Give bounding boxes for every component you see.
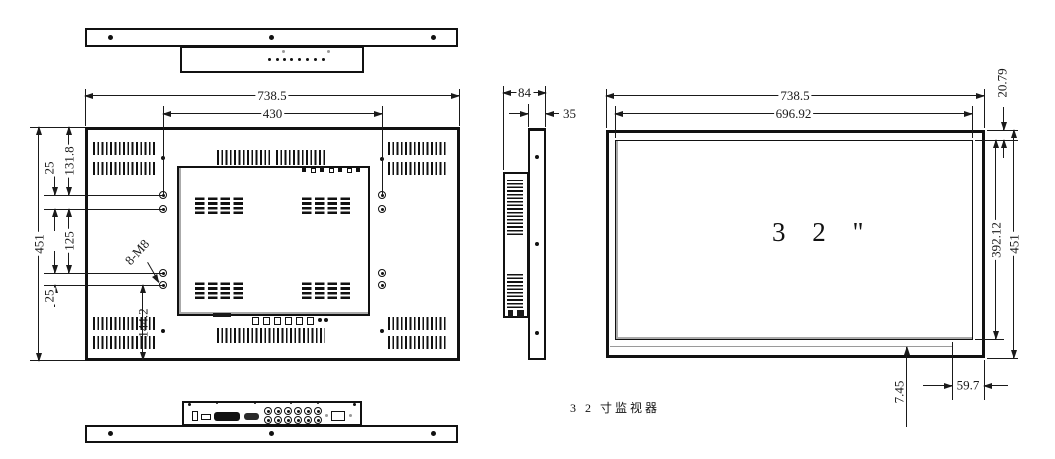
button-dot [327, 50, 330, 53]
extension-line [44, 273, 162, 274]
connector-cutout [318, 318, 322, 322]
vent-grille [388, 317, 448, 330]
bnc-connector [264, 407, 272, 415]
bnc-connector [274, 407, 282, 415]
drawing-caption: 3 2 寸监视器 [570, 399, 660, 416]
extension-line [44, 209, 162, 210]
chassis-bottom-tab [213, 313, 231, 317]
screw-dot [269, 35, 274, 40]
technical-drawing: 738.5 430 451 131.8 25 125 25 144.2 8-M8 [0, 0, 1055, 459]
side-vent-grille [507, 180, 523, 235]
vent-grille [217, 150, 270, 165]
bnc-connector [304, 407, 312, 415]
vent-grille [388, 142, 448, 155]
connector-cutout [263, 317, 270, 325]
screw-dot [535, 155, 539, 159]
dim-back-height: 451 [38, 127, 39, 361]
vent-grille [388, 162, 448, 175]
slot-vent-group [302, 196, 350, 214]
vent-grille [93, 142, 155, 155]
vent-grille [93, 162, 155, 175]
vga-port [244, 413, 259, 420]
dim-corner-offset-seg [923, 385, 952, 386]
screen-size-label: 3 2 " [772, 217, 874, 248]
chassis-top-cutout [329, 168, 334, 173]
usb-port [201, 414, 211, 420]
dim-hole-gap-top-seg [54, 209, 55, 231]
connector-cutout [324, 318, 328, 322]
chassis-top-cutout [320, 168, 324, 172]
connector-cutout [252, 317, 259, 325]
dim-hole-gap-bottom-seg [54, 251, 55, 273]
bnc-connector [314, 407, 322, 415]
osd-button-dot [322, 58, 325, 61]
dim-label: 451 [1008, 232, 1021, 256]
vent-grille [276, 150, 326, 165]
extension-line [503, 86, 504, 170]
dim-screen-width: 696.92 [615, 113, 972, 114]
extension-line [952, 342, 953, 400]
side-foot [517, 310, 524, 317]
dim-front-height: 451 [1013, 130, 1014, 358]
bezel-lip-line [610, 346, 952, 347]
connector-cutout [307, 317, 314, 325]
power-switch [192, 411, 198, 421]
dim-front-depth-seg [509, 113, 528, 114]
bnc-connector [304, 416, 312, 424]
dvi-port [214, 412, 240, 421]
button-dot [282, 50, 285, 53]
dim-back-width: 738.5 [85, 95, 459, 96]
side-foot [508, 310, 513, 317]
dim-label: 84 [516, 86, 533, 99]
extension-line [984, 360, 985, 400]
osd-button-dot [283, 58, 286, 61]
side-vent-grille [507, 272, 523, 308]
screw-dot [353, 403, 356, 406]
vent-dot [216, 402, 218, 404]
extension-line [163, 106, 164, 194]
screw-dot [108, 431, 113, 436]
dim-corner-offset-seg [984, 385, 1008, 386]
dim-label: 738.5 [255, 89, 288, 102]
extension-line [44, 195, 162, 196]
dim-front-width: 738.5 [606, 95, 984, 96]
screw-dot [380, 329, 384, 333]
extension-line [382, 106, 383, 194]
chassis-top-cutout [356, 168, 360, 172]
vent-dot [254, 402, 256, 404]
slot-vent-group [195, 196, 243, 214]
screw-dot [431, 431, 436, 436]
dim-label: 392.12 [990, 220, 1003, 260]
dim-hole-bottom-offset: 144.2 [142, 285, 143, 360]
chassis-top-cutout [311, 168, 316, 173]
dim-mount-width: 430 [163, 113, 382, 114]
vesa-hole [378, 281, 386, 289]
chassis-top-cutout [347, 168, 352, 173]
dim-total-depth: 84 [503, 92, 546, 93]
connector-cutout [274, 317, 281, 325]
connector-cutout [285, 317, 292, 325]
osd-button-dot [298, 58, 301, 61]
screw-dot [108, 35, 113, 40]
dim-label-top-margin: 20.79 [996, 66, 1009, 99]
screw-mark [325, 414, 328, 417]
vent-grille [217, 328, 325, 343]
extension-line [975, 339, 1004, 340]
screw-dot [188, 403, 191, 406]
vent-dot [317, 402, 319, 404]
bnc-connector [284, 416, 292, 424]
dim-label: 738.5 [778, 89, 811, 102]
osd-button-dot [290, 58, 293, 61]
dim-label-bottom-margin: 7.45 [893, 379, 906, 406]
slot-vent-group [302, 281, 350, 299]
bnc-connector [314, 416, 322, 424]
vent-grille [388, 336, 448, 349]
chassis-top-cutout [338, 168, 342, 172]
bnc-connector [294, 407, 302, 415]
dim-hole-top-offset: 131.8 [68, 127, 69, 195]
dim-label-front-depth: 35 [561, 107, 578, 120]
dim-label: 451 [33, 232, 46, 256]
dim-label: 125 [63, 229, 76, 253]
osd-button-dot [276, 58, 279, 61]
top-view-chassis [180, 46, 364, 73]
dim-hole-mid-span: 125 [68, 209, 69, 273]
dim-label-corner-offset: 59.7 [955, 379, 982, 392]
osd-button-dot [306, 58, 309, 61]
dim-front-depth-seg [546, 113, 559, 114]
bnc-connector [264, 416, 272, 424]
dim-label: 144.2 [137, 306, 150, 339]
screw-dot [269, 431, 274, 436]
screw-mark [349, 414, 352, 417]
slot-vent-group [195, 281, 243, 299]
bnc-connector [284, 407, 292, 415]
bnc-connector [274, 416, 282, 424]
screw-dot [431, 35, 436, 40]
dim-label: 430 [261, 107, 285, 120]
screw-dot [161, 329, 165, 333]
dim-label-hole-gap-top: 25 [43, 160, 56, 177]
dim-label-hole-gap-bottom: 25 [43, 288, 56, 305]
vesa-hole [378, 205, 386, 213]
dim-screen-height: 392.12 [995, 140, 996, 339]
dim-label: 696.92 [774, 107, 814, 120]
dim-top-margin-seg [1003, 107, 1004, 130]
dim-top-margin-seg [1003, 140, 1004, 158]
screw-dot [535, 331, 539, 335]
power-inlet [331, 411, 345, 421]
screw-dot [535, 242, 539, 246]
chassis-top-cutout [302, 168, 306, 172]
osd-button-dot [314, 58, 317, 61]
bnc-connector [294, 416, 302, 424]
osd-button-dot [268, 58, 271, 61]
dim-label: 131.8 [63, 144, 76, 177]
connector-cutout [296, 317, 303, 325]
vent-dot [290, 402, 292, 404]
vesa-hole [378, 269, 386, 277]
